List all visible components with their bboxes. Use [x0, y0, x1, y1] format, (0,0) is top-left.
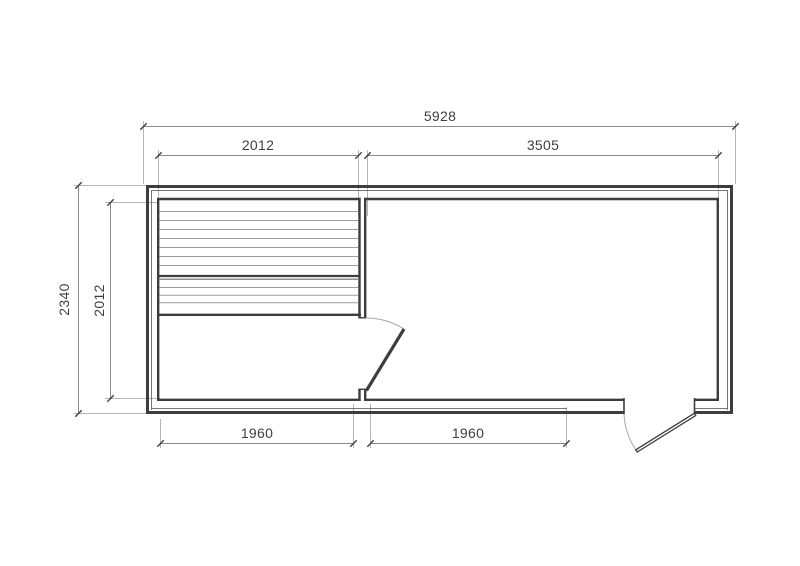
exterior-wall-outer-face [146, 185, 733, 414]
exterior-door [624, 413, 696, 452]
bench-plank-lines-upper [160, 212, 359, 266]
dimension-ticks [75, 123, 738, 446]
room-inner-borders [157, 198, 719, 401]
interior-door-leaf [367, 329, 405, 391]
exterior-wall-inner-face [151, 190, 728, 410]
dimension-lines [79, 127, 736, 444]
bench-plank-lines-lower [160, 288, 359, 303]
exterior-walls [146, 185, 733, 414]
interior-door-swing-arc [366, 318, 404, 329]
dim-label-overall-width: 5928 [424, 108, 456, 124]
dim-label-left-inner-depth: 2012 [91, 284, 107, 316]
dim-label-bottom-left-section: 1960 [241, 425, 273, 441]
exterior-door-swing-arc [624, 414, 636, 450]
dim-label-top-right-section: 3505 [527, 137, 559, 153]
partition-end-caps [358, 318, 366, 390]
exterior-door-leaf [636, 413, 696, 452]
dim-label-top-left-section: 2012 [242, 137, 274, 153]
dim-label-overall-depth: 2340 [56, 283, 72, 315]
dim-label-bottom-right-section: 1960 [452, 425, 484, 441]
bench-area [157, 212, 361, 315]
exterior-door-jambs [624, 398, 695, 414]
floor-plan-drawing: 5928 2012 3505 2340 2012 1960 1960 [0, 0, 800, 566]
floor-plan-page: 5928 2012 3505 2340 2012 1960 1960 [0, 0, 800, 566]
dimension-labels: 5928 2012 3505 2340 2012 1960 1960 [56, 108, 559, 441]
interior-door [366, 318, 404, 391]
